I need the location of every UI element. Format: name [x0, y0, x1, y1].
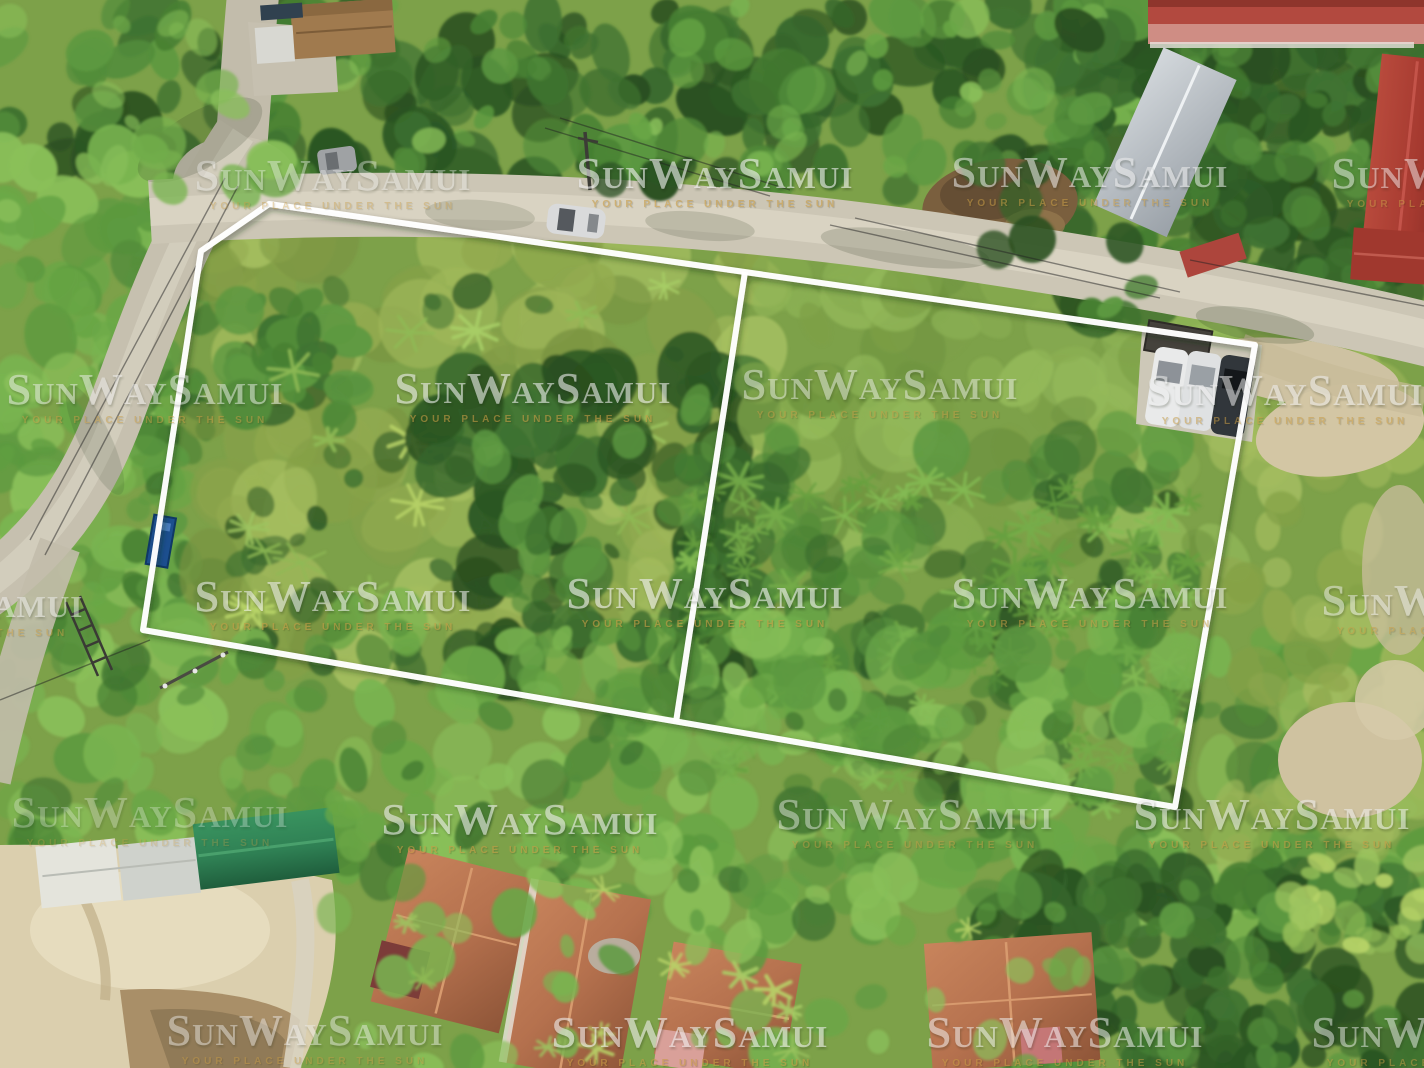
building-topright-pink [1148, 0, 1424, 48]
roof-red-right [1350, 227, 1424, 284]
aerial-scene [0, 0, 1424, 1068]
van-topleft [317, 145, 358, 175]
aerial-photo: SunWaySamuiYOUR PLACE UNDER THE SUNSunWa… [0, 0, 1424, 1068]
